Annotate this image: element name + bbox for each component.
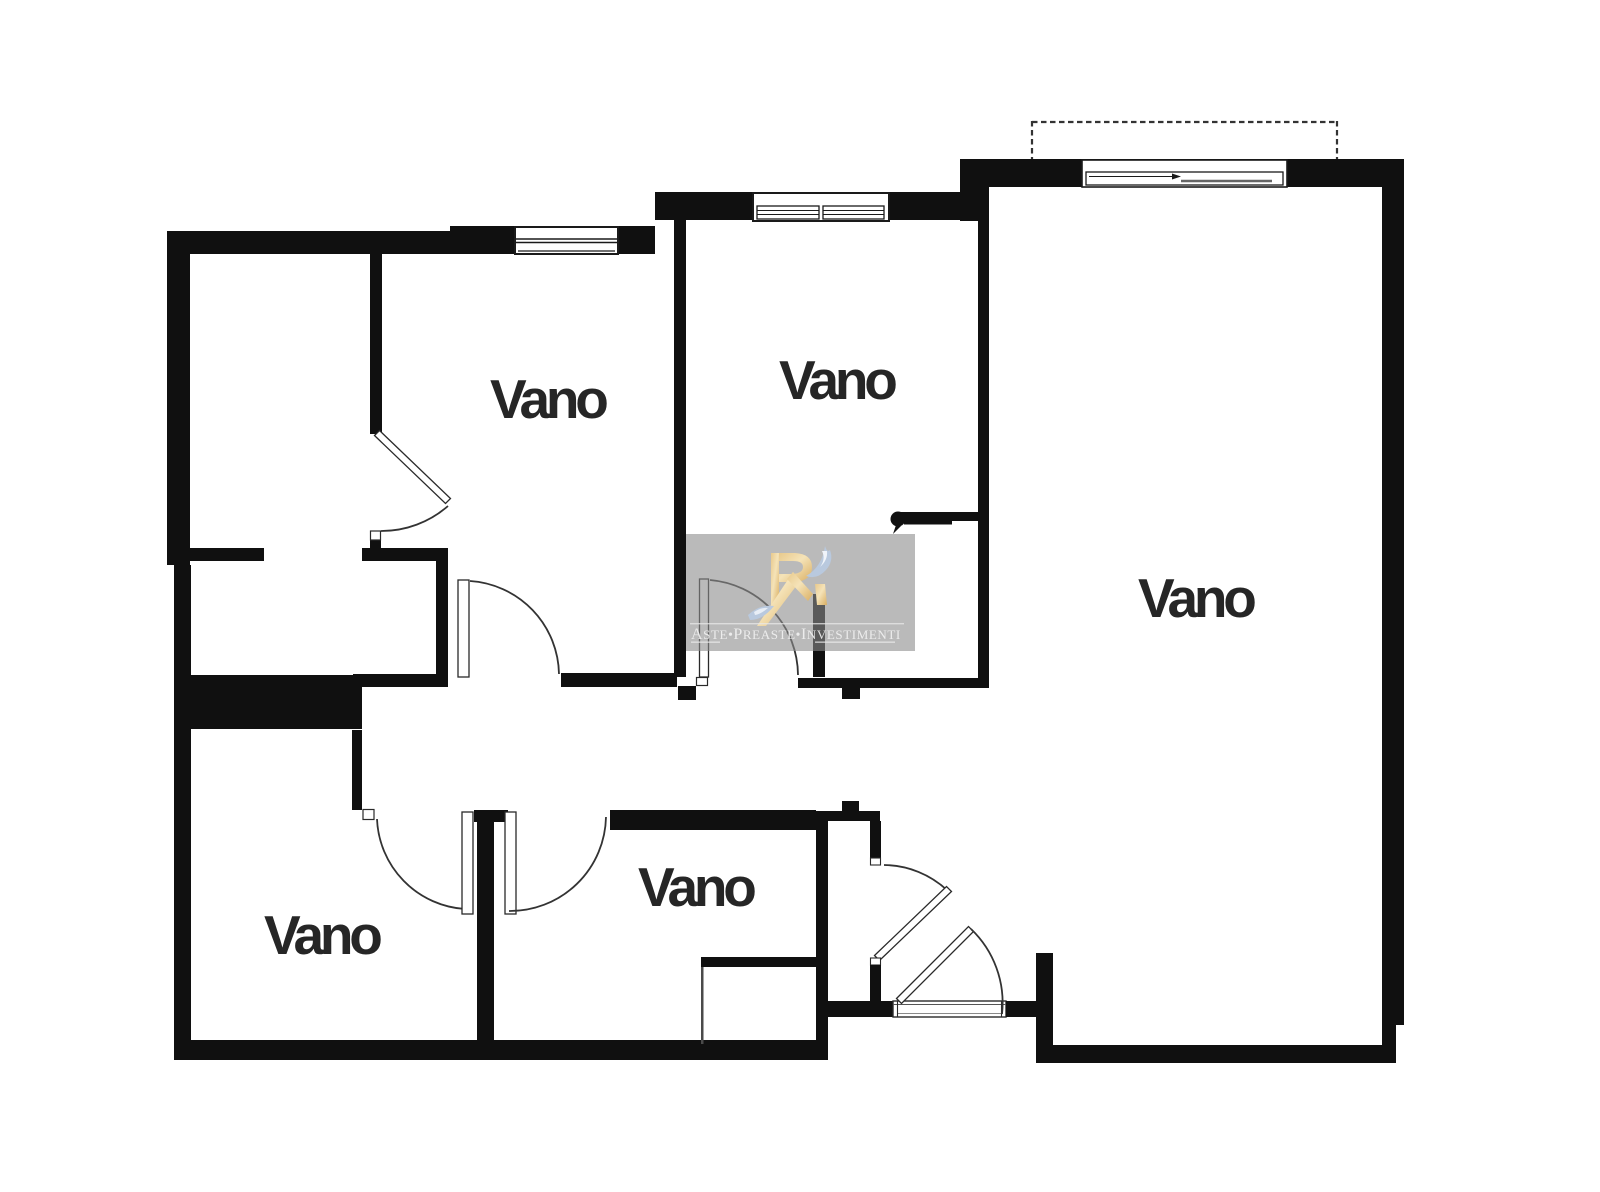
svg-text:Vano: Vano xyxy=(1138,567,1255,629)
svg-text:Vano: Vano xyxy=(779,349,896,411)
svg-text:Vano: Vano xyxy=(264,904,381,966)
svg-text:ASTE•PREASTE•INVESTIMENTI: ASTE•PREASTE•INVESTIMENTI xyxy=(691,626,901,643)
svg-text:Vano: Vano xyxy=(490,368,607,430)
svg-text:Vano: Vano xyxy=(638,856,755,918)
